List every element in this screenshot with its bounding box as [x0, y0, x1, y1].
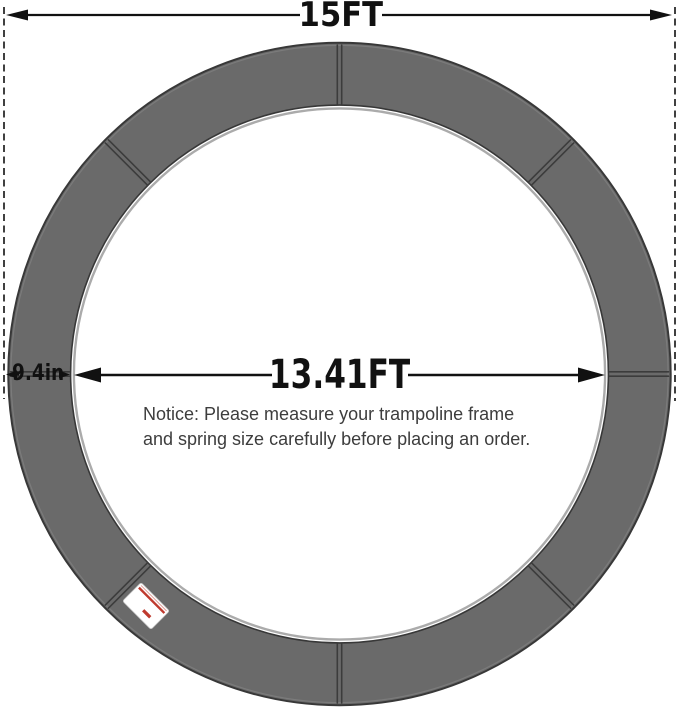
pad-width-label: 9.4in [7, 362, 70, 386]
inner-diameter-label: 13.41FT [240, 353, 440, 397]
arrowhead-right-icon [578, 368, 605, 383]
arrowhead-left-icon [6, 10, 28, 21]
arrowhead-right-icon [650, 10, 672, 21]
inner-diameter-value: 13.41FT [269, 353, 410, 397]
arrowhead-left-icon [74, 368, 101, 383]
notice-line-1: Notice: Please measure your trampoline f… [143, 402, 530, 427]
notice-text: Notice: Please measure your trampoline f… [143, 402, 530, 452]
outer-diameter-value: 15FT [299, 0, 383, 35]
pad-width-value: 9.4in [12, 362, 64, 386]
outer-diameter-label: 15FT [241, 0, 441, 35]
trampoline-pad-diagram: 15FT 13.41FT 9.4in Notice: Please measur… [0, 0, 679, 713]
notice-line-2: and spring size carefully before placing… [143, 427, 530, 452]
